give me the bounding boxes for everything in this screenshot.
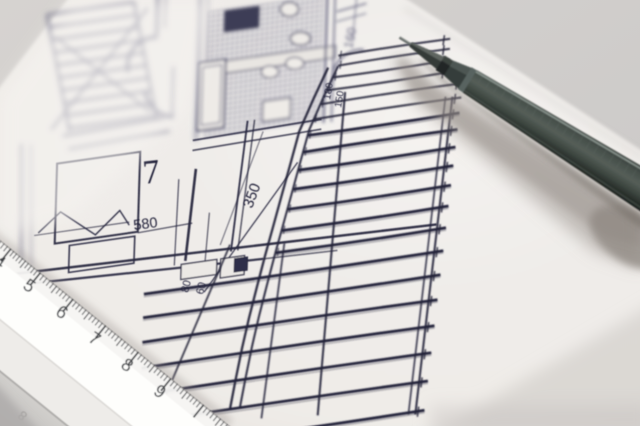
svg-text:580: 580	[133, 215, 159, 234]
